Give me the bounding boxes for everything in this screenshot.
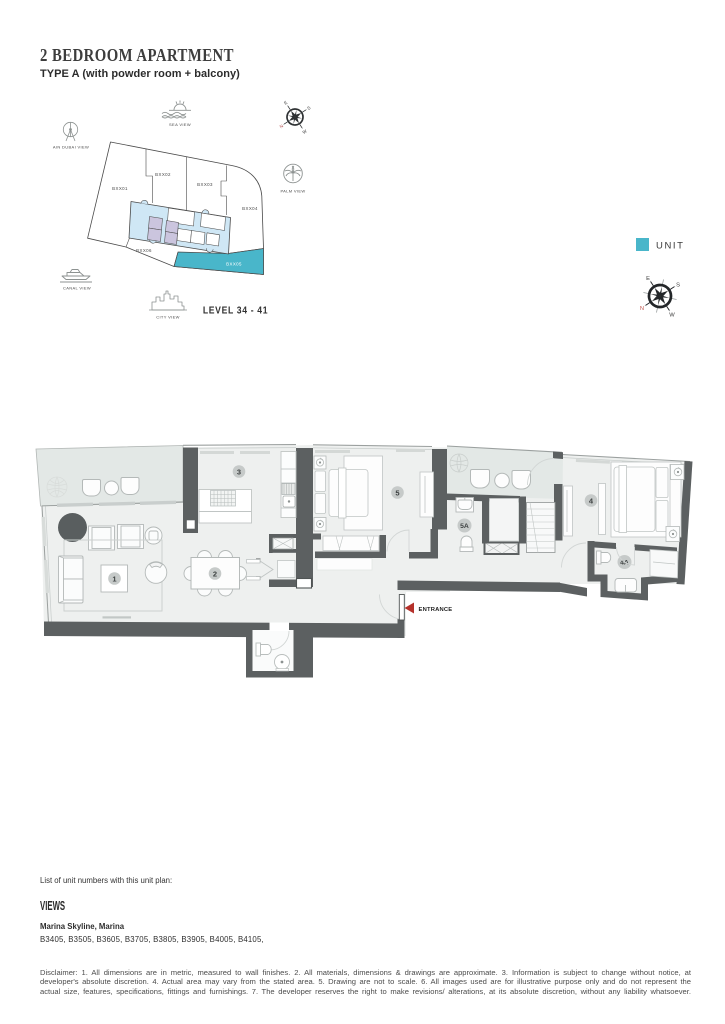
svg-text:BXX04: BXX04 xyxy=(242,206,258,211)
svg-text:E: E xyxy=(646,276,650,282)
svg-text:CITY VIEW: CITY VIEW xyxy=(156,315,180,320)
svg-text:2: 2 xyxy=(213,569,217,578)
svg-text:BXX03: BXX03 xyxy=(197,182,213,187)
svg-text:PALM VIEW: PALM VIEW xyxy=(280,189,305,194)
svg-text:CANAL VIEW: CANAL VIEW xyxy=(63,286,91,291)
svg-text:BXX02: BXX02 xyxy=(155,172,171,177)
svg-text:1: 1 xyxy=(112,574,116,583)
svg-text:AIN DUBAI VIEW: AIN DUBAI VIEW xyxy=(53,145,89,150)
svg-text:BXX01: BXX01 xyxy=(112,186,128,191)
svg-text:5A: 5A xyxy=(460,523,469,530)
svg-text:N: N xyxy=(640,306,644,312)
svg-text:S: S xyxy=(676,282,680,288)
svg-text:E: E xyxy=(283,100,288,106)
svg-text:W: W xyxy=(669,312,675,318)
svg-text:4A: 4A xyxy=(620,560,629,567)
svg-text:S: S xyxy=(306,105,311,111)
svg-text:BXX06: BXX06 xyxy=(136,248,152,253)
svg-text:3: 3 xyxy=(237,467,241,476)
svg-text:5: 5 xyxy=(395,488,399,497)
svg-text:BXX05: BXX05 xyxy=(226,262,242,267)
svg-text:SEA VIEW: SEA VIEW xyxy=(169,122,191,127)
svg-text:UNIT: UNIT xyxy=(656,241,685,252)
svg-text:LEVEL 34 - 41: LEVEL 34 - 41 xyxy=(203,305,268,317)
svg-text:ENTRANCE: ENTRANCE xyxy=(419,607,453,613)
svg-text:W: W xyxy=(301,128,308,135)
